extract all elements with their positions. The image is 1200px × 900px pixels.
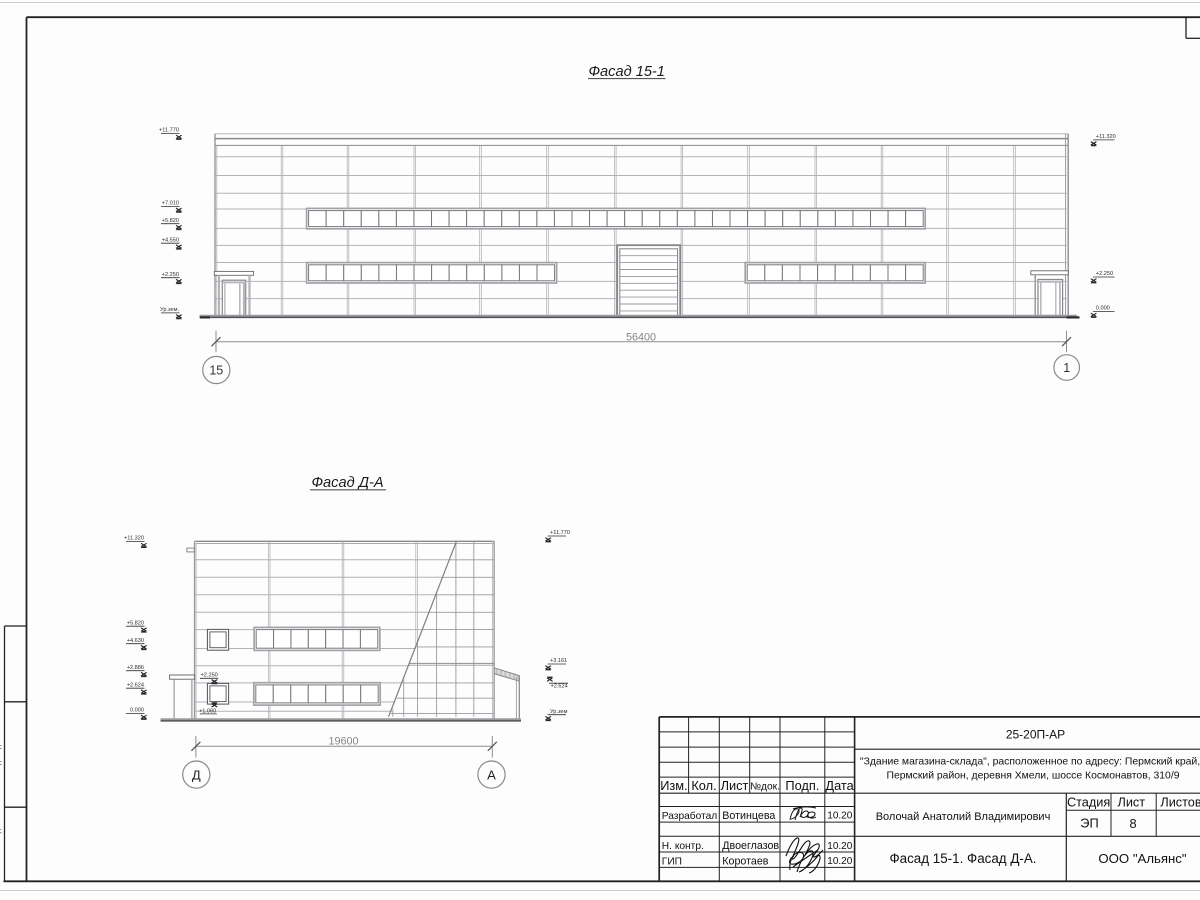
svg-text:1: 1 xyxy=(1063,361,1070,375)
svg-text:0.000: 0.000 xyxy=(1096,306,1110,312)
svg-text:Коротаев: Коротаев xyxy=(722,856,768,868)
svg-text:Д: Д xyxy=(192,767,201,782)
svg-text:Дата: Дата xyxy=(825,778,854,793)
svg-text:10.20: 10.20 xyxy=(827,841,852,852)
svg-text:ООО "Альянс": ООО "Альянс" xyxy=(1098,851,1186,866)
svg-text:Взам. инв. №: Взам. инв. № xyxy=(0,643,2,683)
svg-text:56400: 56400 xyxy=(626,332,656,344)
svg-text:Лист: Лист xyxy=(721,778,749,793)
svg-text:Изм.: Изм. xyxy=(660,778,687,793)
svg-text:0.000: 0.000 xyxy=(130,708,144,714)
svg-text:А: А xyxy=(487,767,496,782)
svg-text:Лист: Лист xyxy=(1118,796,1146,810)
svg-text:10.20: 10.20 xyxy=(827,811,852,822)
svg-text:+4.550: +4.550 xyxy=(162,237,179,243)
svg-text:Стадия: Стадия xyxy=(1067,796,1110,810)
svg-text:+11.770: +11.770 xyxy=(550,530,570,536)
svg-text:Фасад 15-1: Фасад 15-1 xyxy=(588,64,664,80)
svg-text:25-20П-АР: 25-20П-АР xyxy=(1006,728,1065,742)
svg-text:8: 8 xyxy=(1129,816,1136,831)
svg-text:ЭП: ЭП xyxy=(1080,816,1098,831)
svg-text:+11.770: +11.770 xyxy=(159,128,179,134)
svg-text:+2.250: +2.250 xyxy=(201,673,218,679)
svg-text:Подп. и дата: Подп. и дата xyxy=(0,734,2,773)
svg-text:+2.624: +2.624 xyxy=(551,684,568,690)
svg-text:+2.624: +2.624 xyxy=(127,682,144,688)
svg-text:+7.010: +7.010 xyxy=(162,201,179,207)
svg-text:Ур.зем.: Ур.зем. xyxy=(160,307,179,313)
svg-text:+11.320: +11.320 xyxy=(1096,134,1116,140)
svg-text:19600: 19600 xyxy=(328,736,358,748)
svg-text:+4.630: +4.630 xyxy=(127,638,144,644)
svg-text:Разработал: Разработал xyxy=(662,810,718,822)
svg-text:Пермский район, деревня Хмели,: Пермский район, деревня Хмели, шоссе Кос… xyxy=(886,770,1179,781)
svg-text:+5.820: +5.820 xyxy=(127,620,144,626)
svg-text:Волочай Анатолий Владимирович: Волочай Анатолий Владимирович xyxy=(876,811,1051,823)
svg-text:ГИП: ГИП xyxy=(662,857,682,868)
svg-text:10.20: 10.20 xyxy=(827,856,852,867)
svg-text:Инв. № подл.: Инв. № подл. xyxy=(0,824,2,865)
svg-text:+2.250: +2.250 xyxy=(162,272,179,278)
svg-text:+5.820: +5.820 xyxy=(162,218,179,224)
svg-text:+11.320: +11.320 xyxy=(124,536,144,542)
svg-text:Фасад 15-1. Фасад Д-А.: Фасад 15-1. Фасад Д-А. xyxy=(889,851,1036,866)
svg-text:+2.886: +2.886 xyxy=(127,665,144,671)
svg-text:+2.250: +2.250 xyxy=(1096,271,1113,277)
svg-text:№док.: №док. xyxy=(750,782,780,793)
svg-text:Фасад Д-А: Фасад Д-А xyxy=(311,475,383,491)
svg-text:Двоеглазов: Двоеглазов xyxy=(722,840,779,852)
svg-text:Подп.: Подп. xyxy=(785,778,819,793)
svg-text:Вотинцева: Вотинцева xyxy=(722,810,775,822)
svg-text:+3.161: +3.161 xyxy=(550,658,567,664)
svg-text:Листов: Листов xyxy=(1160,796,1200,810)
svg-text:Ур.зем: Ур.зем xyxy=(550,709,568,715)
svg-text:Кол.: Кол. xyxy=(691,778,716,793)
svg-text:Н. контр.: Н. контр. xyxy=(662,841,704,852)
svg-text:15: 15 xyxy=(209,364,223,378)
svg-text:"Здание магазина-склада", расп: "Здание магазина-склада", расположенное … xyxy=(860,757,1200,768)
